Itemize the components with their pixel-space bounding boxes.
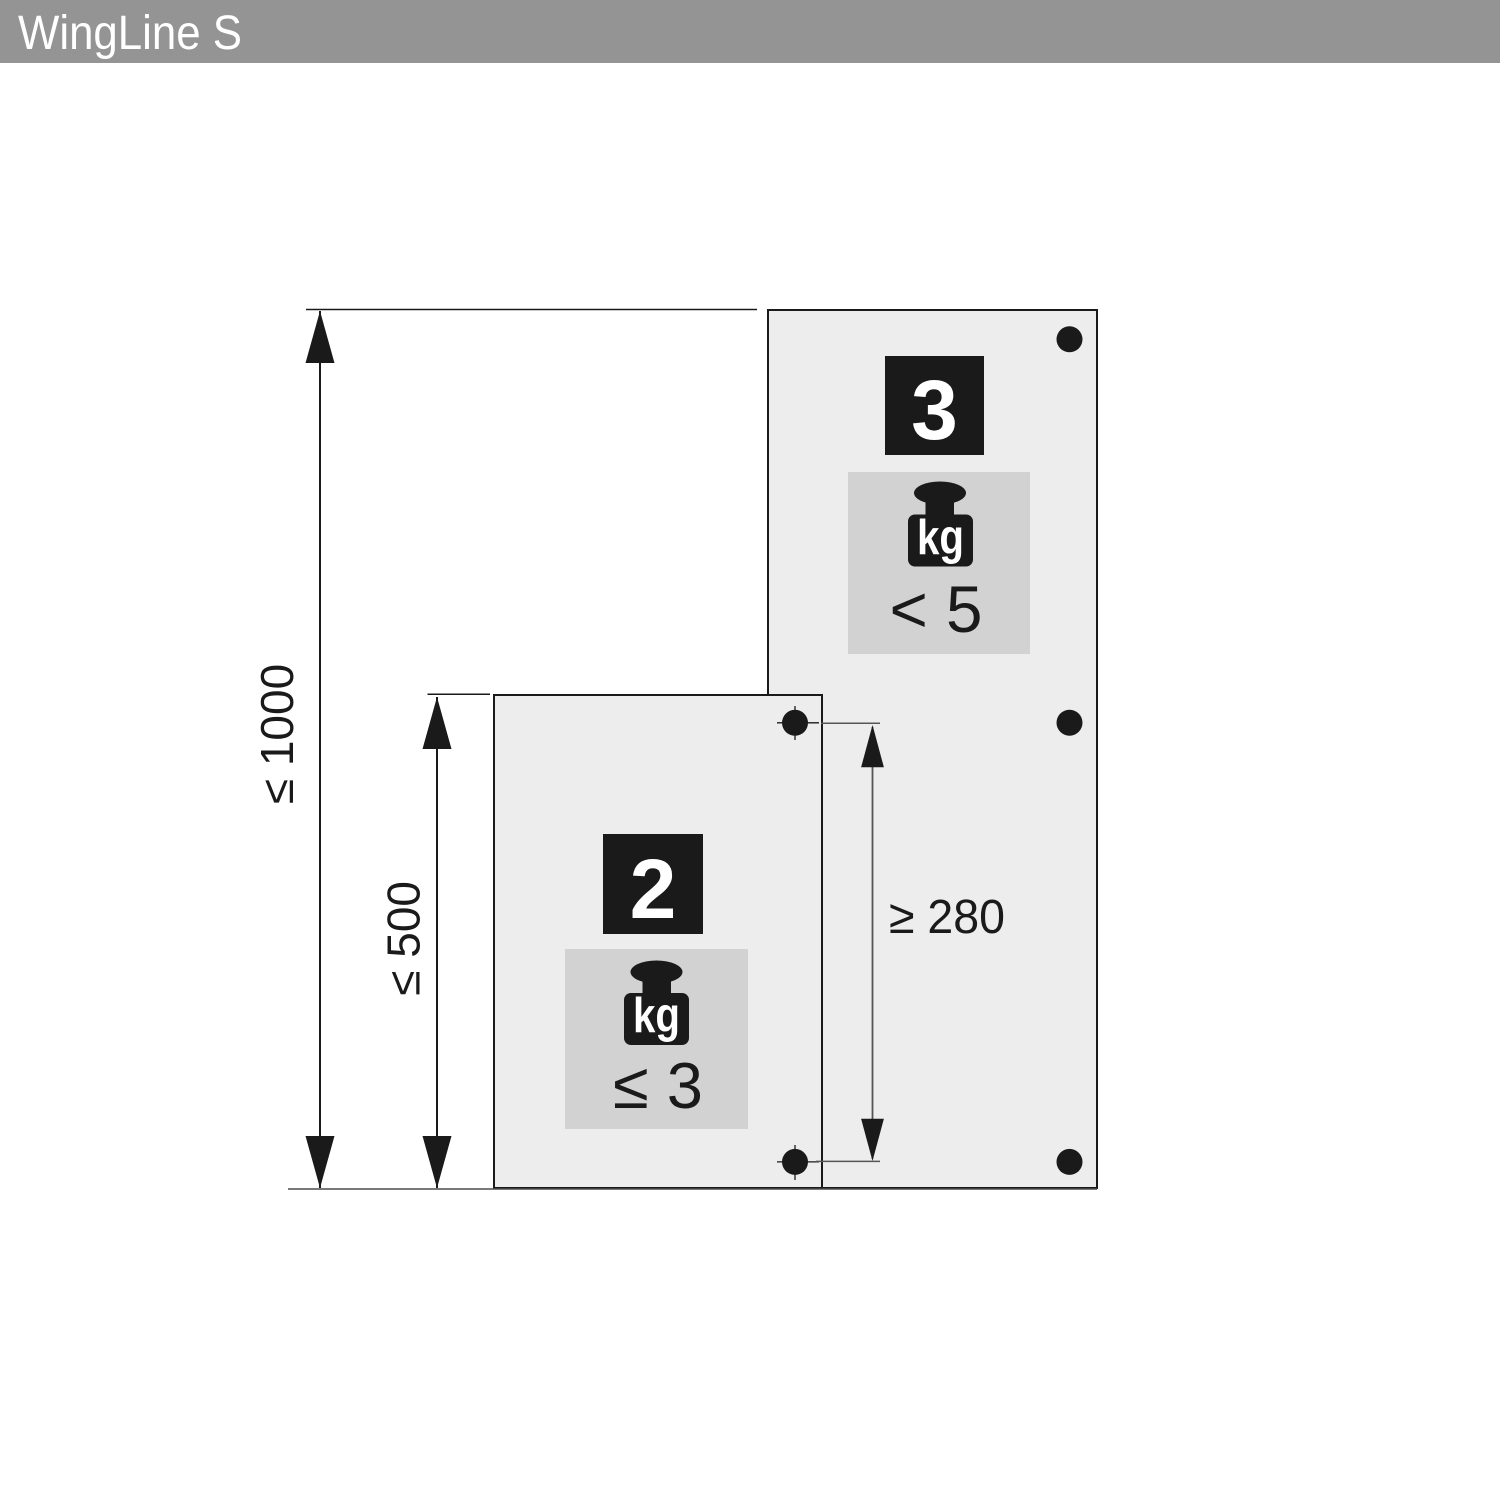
svg-text:2: 2: [630, 842, 677, 936]
svg-text:≤ 1000: ≤ 1000: [251, 664, 303, 804]
svg-text:≥ 280: ≥ 280: [889, 891, 1005, 944]
svg-text:≤ 500: ≤ 500: [378, 881, 430, 996]
svg-text:kg: kg: [917, 511, 964, 565]
svg-text:WingLine S: WingLine S: [18, 7, 242, 60]
svg-text:< 5: < 5: [890, 572, 983, 646]
svg-text:3: 3: [911, 363, 958, 457]
svg-text:≤ 3: ≤ 3: [613, 1049, 703, 1122]
svg-text:kg: kg: [633, 989, 680, 1043]
